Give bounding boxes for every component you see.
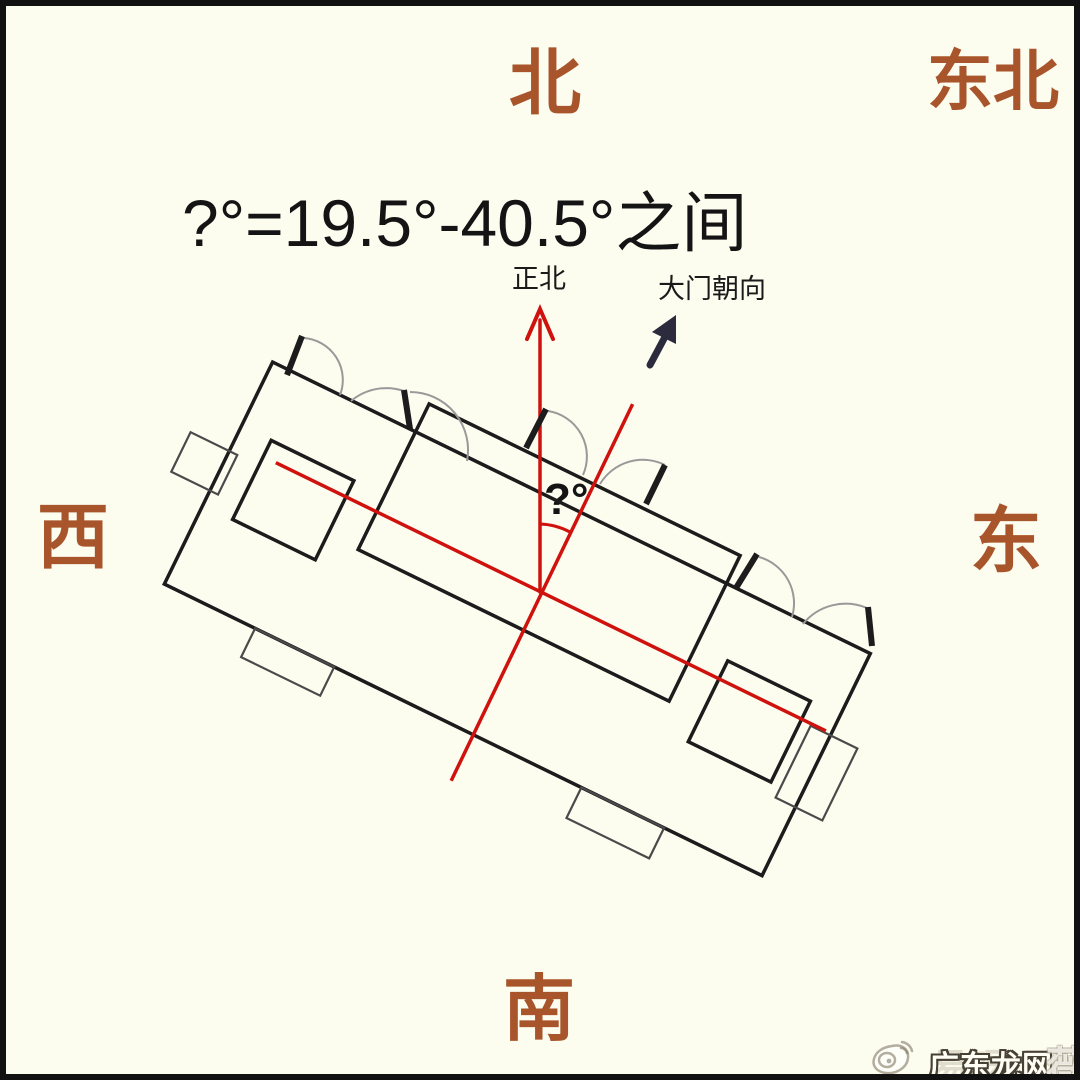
room-left-square (233, 440, 354, 559)
door-leaf-3 (526, 409, 546, 448)
door-leaf-2 (404, 390, 410, 429)
axis-long-line (276, 463, 826, 731)
door-leaf-6 (868, 607, 872, 646)
door-arc-2 (351, 388, 404, 401)
balcony-group (111, 425, 858, 919)
watermark-main-text: 广东龙网 (929, 1042, 1053, 1080)
balcony-east (776, 726, 858, 821)
balcony-south-right (566, 787, 664, 858)
gate-arrow-shaft (650, 335, 666, 365)
door-leaf-4 (646, 465, 665, 504)
angle-arc (540, 524, 570, 532)
floor-plan-canvas (6, 6, 1080, 1080)
gate-arrow-group (650, 315, 676, 365)
door-leaf-group (287, 336, 872, 646)
balcony-west (171, 432, 237, 494)
weibo-pupil (887, 1059, 892, 1064)
watermark: 易呀 广东龙网 薇 (866, 1028, 1080, 1080)
building-middle-block (358, 404, 740, 701)
diagram-canvas: 北 东北 西 东 南 ?°=19.5°-40.5°之间 正北 大门朝向 ?° (0, 0, 1080, 1080)
door-leaf-1 (287, 336, 302, 375)
door-arc-7 (803, 604, 867, 624)
watermark-ghost-text-right: 薇 (1046, 1034, 1080, 1080)
weibo-icon (868, 1032, 920, 1080)
